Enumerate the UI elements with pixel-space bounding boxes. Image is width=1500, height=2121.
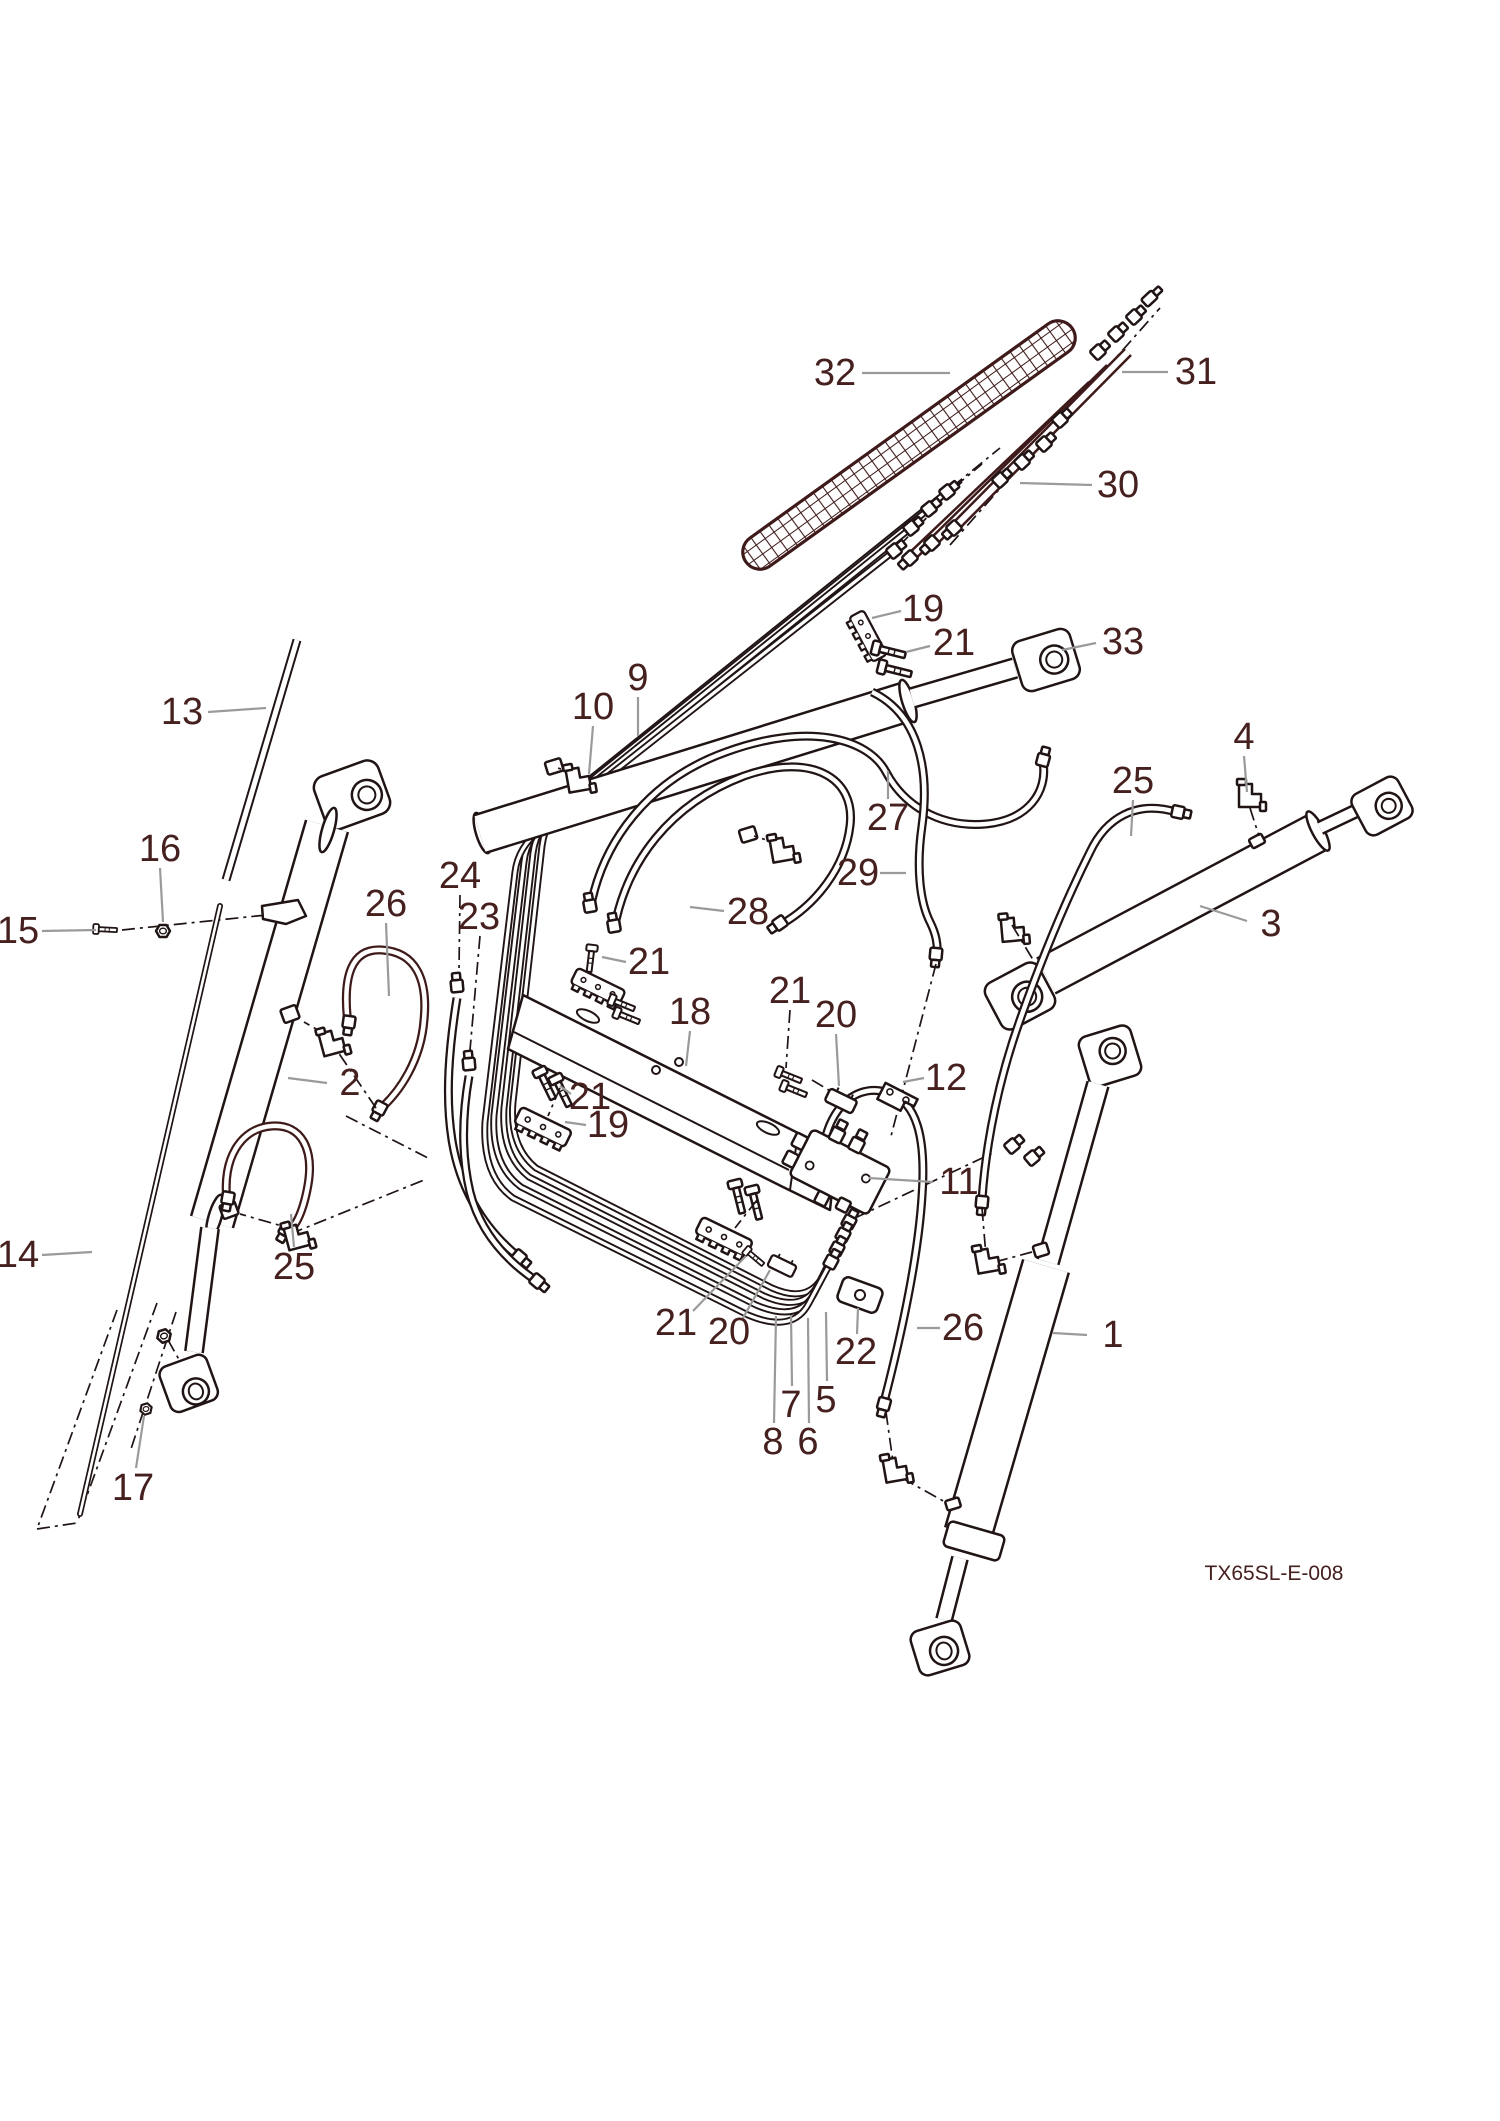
part-label-1: 1 [1102,1314,1123,1356]
leader-line-19 [565,1122,586,1125]
rod-13 [226,640,297,880]
leader-line-1 [1053,1333,1087,1335]
part-label-19: 19 [587,1104,629,1146]
part-label-7: 7 [780,1384,801,1426]
part-label-10: 10 [572,686,614,728]
leader-line-20 [836,1034,839,1086]
leader-line-14 [42,1252,92,1255]
nut-17b [139,1402,153,1415]
part-label-29: 29 [837,852,879,894]
part-label-17: 17 [112,1467,154,1509]
leader-line-25 [1131,800,1133,836]
fitting-cluster-31 [1090,285,1164,361]
part-label-31: 31 [1175,351,1217,393]
part-label-26: 26 [942,1307,984,1349]
leader-line-15 [42,930,96,931]
part-label-25: 25 [1112,760,1154,802]
leader-line-6 [808,1318,809,1423]
part-label-25: 25 [273,1246,315,1288]
leader-line-12 [903,1078,924,1082]
leader-line-19 [872,611,901,618]
part-label-13: 13 [161,691,203,733]
exploded-parts-diagram: 3231301921334253292728910242326225131615… [0,0,1500,2121]
leader-line-13 [208,708,266,712]
leader-line-16 [160,868,163,922]
part-label-32: 32 [814,352,856,394]
bolt-15 [93,924,117,935]
leader-line-28 [690,907,724,911]
leader-line-2 [288,1078,327,1083]
part-label-30: 30 [1097,464,1139,506]
part-label-21: 21 [769,970,811,1012]
part-label-23: 23 [458,896,500,938]
part-label-28: 28 [727,891,769,933]
part-label-24: 24 [439,855,481,897]
part-label-22: 22 [835,1331,877,1373]
leader-line-21 [906,646,930,652]
cylinder-3 [981,773,1415,1033]
adapter-fitting [1024,1145,1046,1166]
part-label-26: 26 [365,883,407,925]
part-label-4: 4 [1233,716,1254,758]
part-label-14: 14 [0,1234,39,1276]
part-label-12: 12 [925,1057,967,1099]
spacer-plate-22 [836,1276,884,1315]
part-label-16: 16 [139,828,181,870]
leader-line-18 [686,1031,690,1066]
elbow-fitting-1b [880,1450,914,1487]
part-label-20: 20 [815,994,857,1036]
steel-tube-bundle [485,479,961,1322]
part-label-27: 27 [867,797,909,839]
part-label-21: 21 [628,941,670,983]
leader-line-7 [791,1315,792,1386]
part-label-20: 20 [708,1311,750,1353]
figure-code: TX65SL-E-008 [1205,1562,1344,1585]
leader-line-21 [786,1010,790,1068]
part-label-5: 5 [815,1379,836,1421]
part-label-9: 9 [627,657,648,699]
tube-clamp-19-top [845,610,887,664]
adapter-fitting [1004,1133,1026,1154]
leader-line-17 [136,1416,144,1468]
part-label-6: 6 [797,1421,818,1463]
part-label-21: 21 [933,622,975,664]
leader-line-5 [826,1312,827,1381]
parts-diagram-page: 3231301921334253292728910242326225131615… [0,0,1500,2121]
part-label-8: 8 [762,1421,783,1463]
part-label-21: 21 [655,1302,697,1344]
part-label-18: 18 [669,991,711,1033]
elbow-fitting-33b [767,830,801,867]
valve-block-11 [773,1105,901,1226]
nut-16 [156,925,170,937]
part-label-33: 33 [1102,621,1144,663]
clamp-cap-20-right [824,1085,859,1114]
part-label-15: 15 [0,910,39,952]
part-label-11: 11 [939,1161,978,1203]
part-label-3: 3 [1260,903,1281,945]
leader-line-21 [602,957,626,962]
leader-line-30 [1020,483,1092,485]
part-label-2: 2 [339,1062,360,1104]
leader-line-26 [386,923,389,996]
leader-line-8 [774,1316,776,1423]
leader-line-10 [589,726,593,774]
leader-line-23 [470,936,480,1050]
clamp-cap-20-bottom [767,1251,798,1277]
elbow-fitting-4 [1237,779,1266,811]
